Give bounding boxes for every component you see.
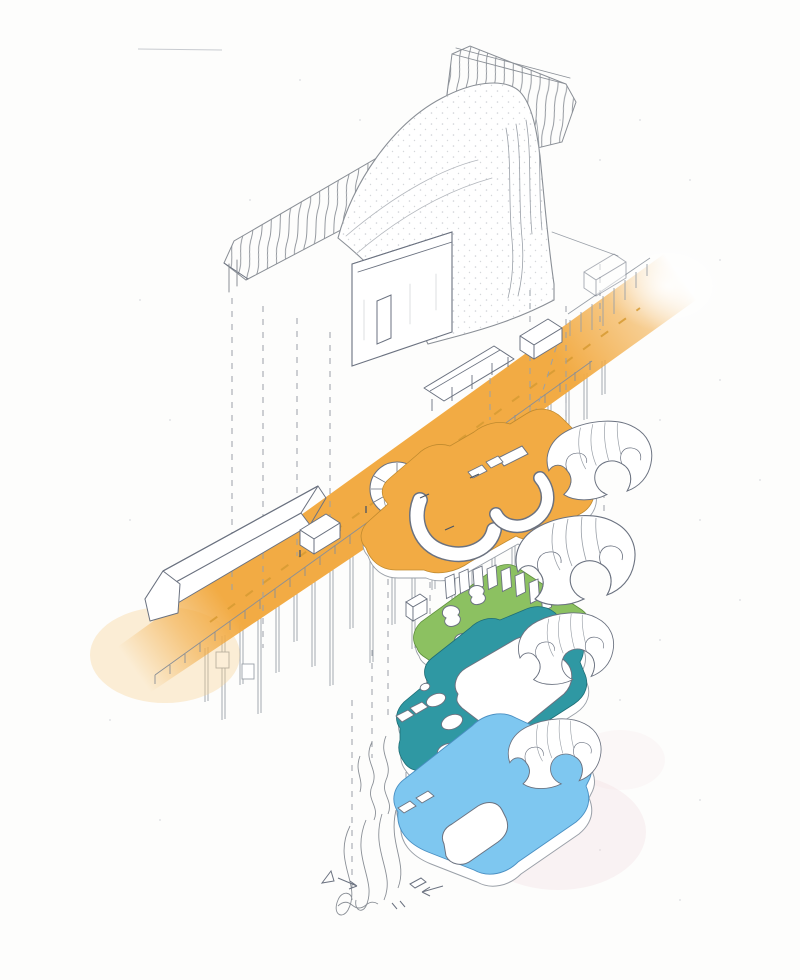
sketch-page (0, 0, 800, 980)
exploded-axonometric-diagram (0, 0, 800, 980)
tower-window (377, 295, 391, 344)
